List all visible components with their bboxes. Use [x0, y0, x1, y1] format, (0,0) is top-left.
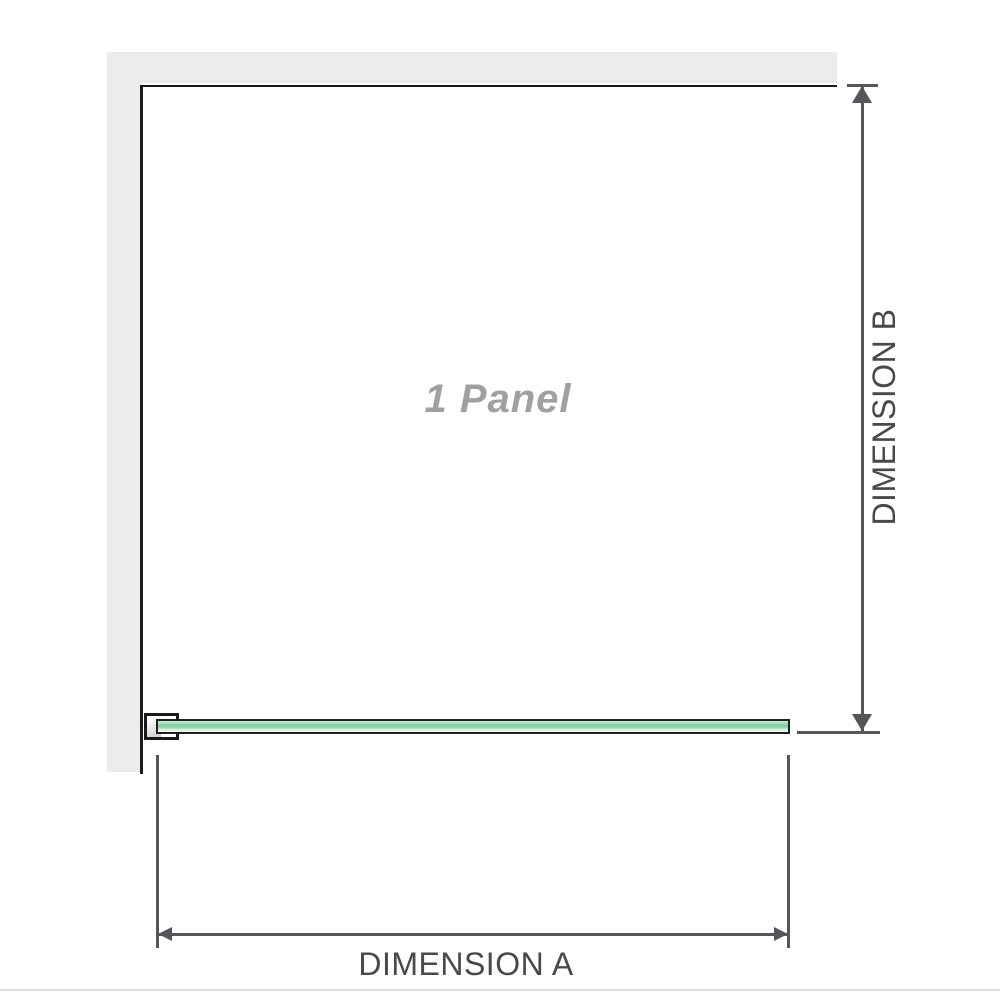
- bottom-divider-line: [0, 989, 1000, 991]
- dimension-a-line: [158, 933, 788, 936]
- dimension-a-left-tick: [156, 755, 159, 948]
- arrow-up-icon: [852, 86, 872, 103]
- frame-top-edge: [140, 85, 837, 88]
- arrow-down-icon: [852, 714, 872, 731]
- arrow-right-icon: [774, 927, 788, 941]
- arrow-left-icon: [158, 927, 172, 941]
- dimension-b-label: DIMENSION B: [864, 267, 904, 567]
- dimension-a-label: DIMENSION A: [266, 944, 666, 984]
- panel-count-label: 1 Panel: [298, 369, 698, 429]
- frame-left-edge: [140, 85, 143, 774]
- wall-top: [107, 52, 837, 83]
- shower-screen-dimension-diagram: 1 Panel DIMENSION B DIMENSION A: [0, 0, 1000, 1000]
- dimension-a-right-tick: [787, 755, 790, 948]
- glass-panel: [156, 719, 790, 734]
- wall-left: [107, 52, 141, 772]
- dimension-b-bottom-tick: [797, 731, 880, 734]
